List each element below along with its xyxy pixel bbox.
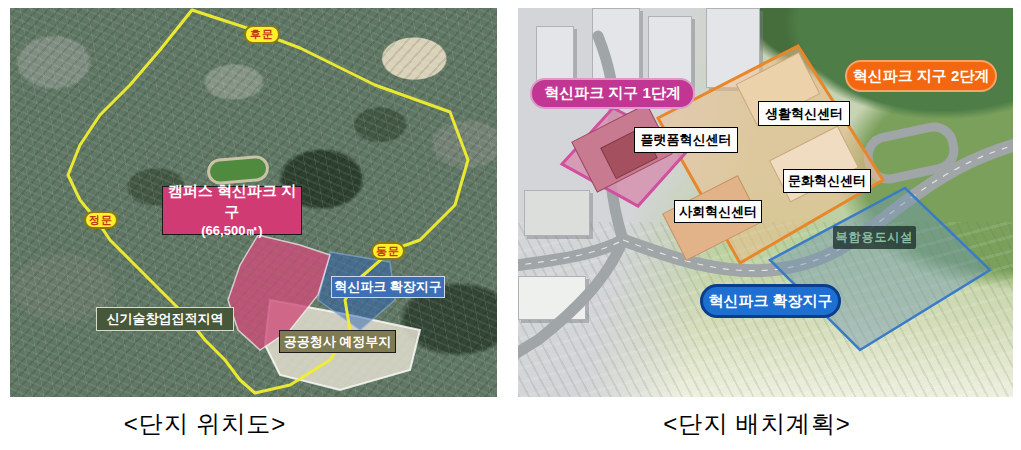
newtech-area-label: 신기술창업집적지역 (96, 307, 234, 331)
life-innovation-center-label: 생활혁신센터 (758, 101, 850, 126)
gate-label-east: 동문 (371, 242, 405, 260)
site-plan-render: 혁신파크 지구 1단계 혁신파크 지구 2단계 생활혁신센터 플랫폼혁신센터 문… (518, 8, 1013, 397)
left-caption: <단지 위치도> (85, 408, 325, 440)
phase2-pill: 혁신파크 지구 2단계 (845, 60, 997, 92)
district-title: 캠퍼스 혁신파크 지구 (163, 181, 301, 222)
culture-innovation-center-label: 문화혁신센터 (783, 169, 871, 193)
expansion-pill: 혁신파크 확장지구 (700, 284, 841, 318)
phase1-pill: 혁신파크 지구 1단계 (530, 78, 695, 109)
site-location-map: 후문 정문 동문 캠퍼스 혁신파크 지구 (66,500㎡) 혁신파크 확장지구… (10, 8, 497, 397)
expansion-district-label: 혁신파크 확장지구 (331, 276, 445, 298)
gate-label-rear: 후문 (244, 25, 280, 44)
public-site-label: 공공청사 예정부지 (279, 330, 396, 353)
right-caption: <단지 배치계획> (637, 408, 877, 440)
social-innovation-center-label: 사회혁신센터 (674, 200, 762, 223)
mixed-use-facility-label: 복합용도시설 (833, 226, 916, 249)
figure-pair: 후문 정문 동문 캠퍼스 혁신파크 지구 (66,500㎡) 혁신파크 확장지구… (0, 0, 1021, 450)
platform-innovation-center-label: 플랫폼혁신센터 (634, 127, 738, 153)
innovation-district-callout: 캠퍼스 혁신파크 지구 (66,500㎡) (162, 186, 302, 235)
district-area: (66,500㎡) (163, 222, 301, 240)
gate-label-main: 정문 (84, 211, 118, 229)
